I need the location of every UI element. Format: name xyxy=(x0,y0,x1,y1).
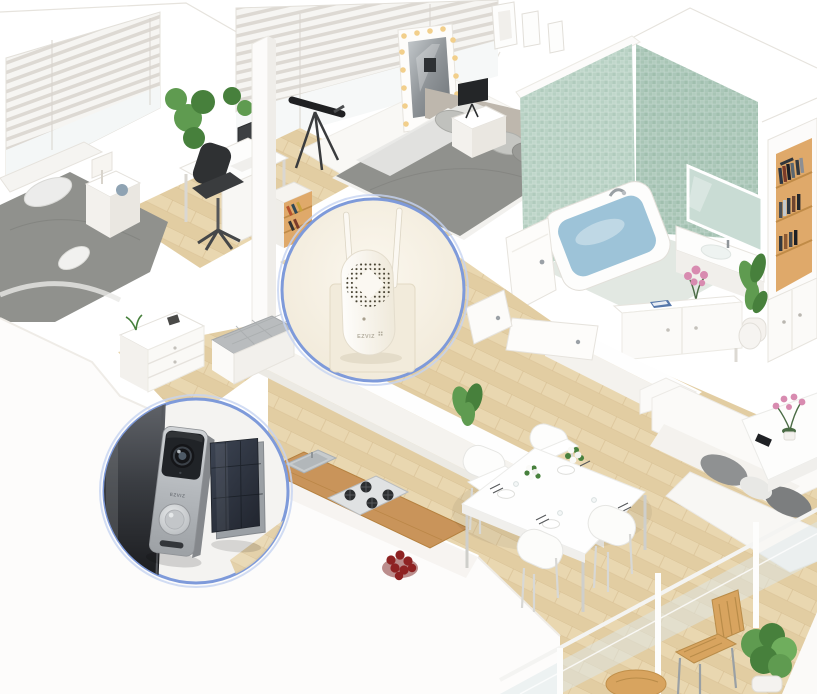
callout-chime: EZVIZ xyxy=(278,195,468,385)
floorplan-scene: EZVIZ xyxy=(0,0,817,694)
decor-ball xyxy=(116,184,128,196)
white-vase xyxy=(739,323,761,349)
mirror-reflection-lamp xyxy=(424,58,436,72)
door-handle xyxy=(540,260,545,265)
door-handle xyxy=(576,340,580,344)
floorplan-illustration: EZVIZ xyxy=(0,0,817,694)
chime-led xyxy=(362,317,365,320)
chime-speaker xyxy=(346,261,392,307)
solar-panel-face xyxy=(204,435,266,536)
partition-wall xyxy=(252,36,276,332)
chime-brand-logo: EZVIZ xyxy=(357,334,375,340)
plant-pot xyxy=(752,676,782,692)
door-handle xyxy=(496,316,500,320)
